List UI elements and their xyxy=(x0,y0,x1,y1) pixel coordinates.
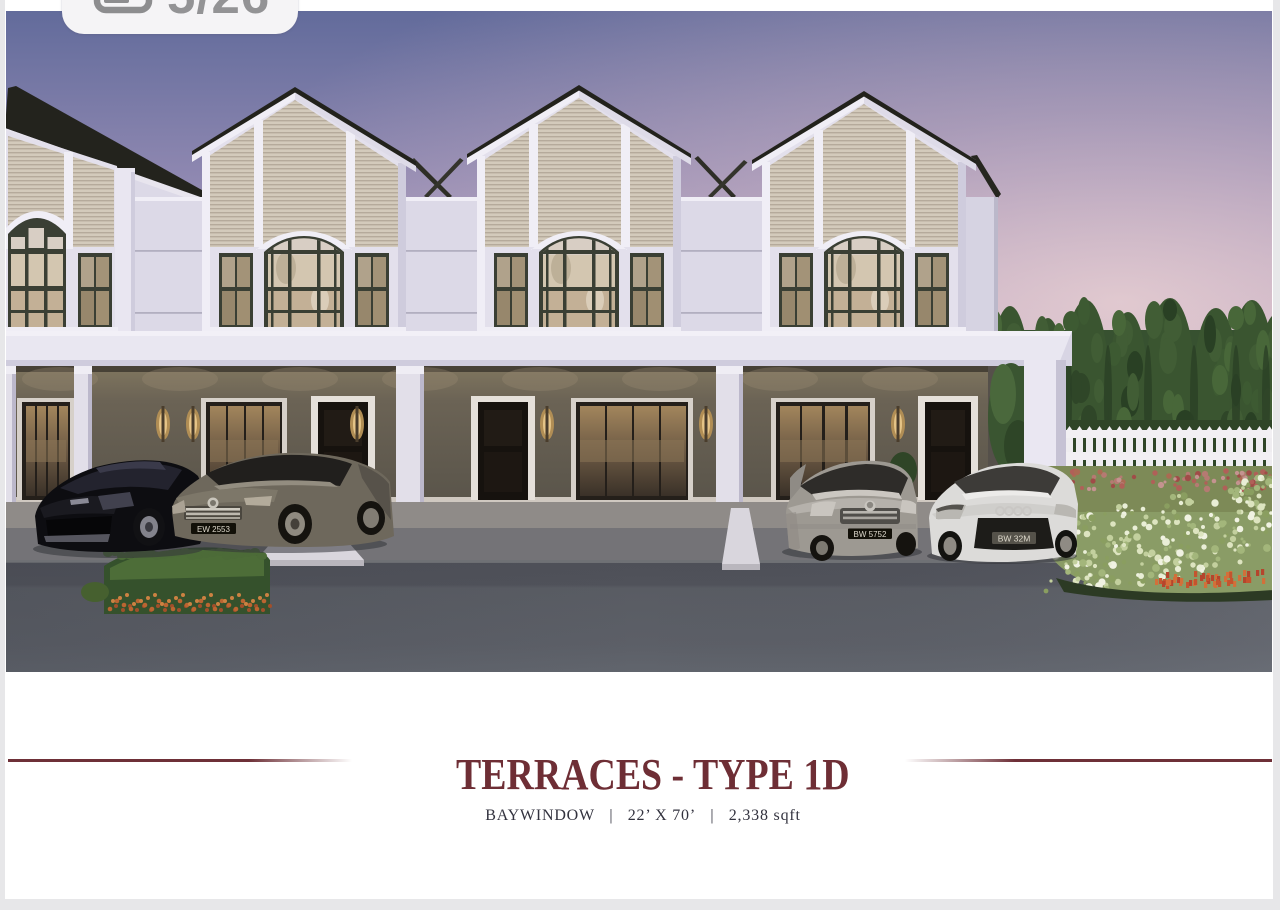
svg-text:BW 32M: BW 32M xyxy=(998,534,1031,544)
svg-text:EW 2553: EW 2553 xyxy=(197,525,230,534)
svg-text:BW 5752: BW 5752 xyxy=(854,530,887,539)
